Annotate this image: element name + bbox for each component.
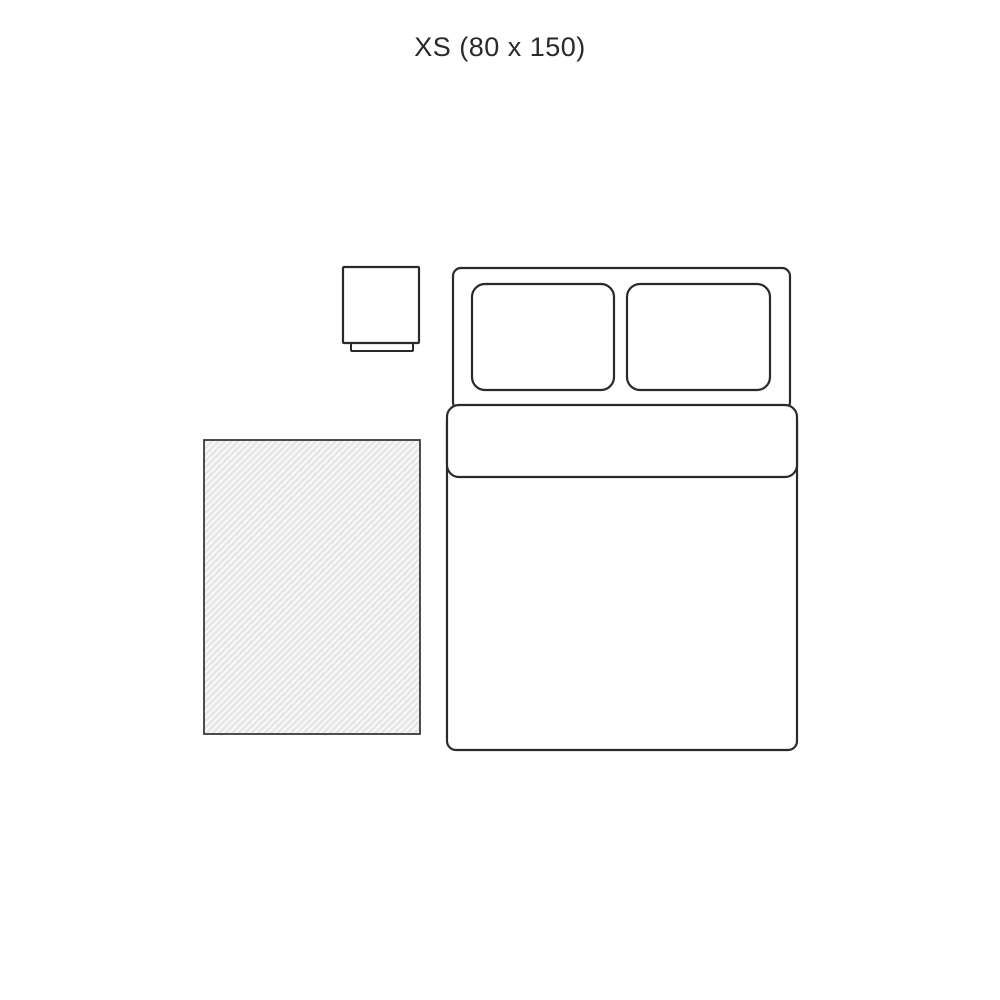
pillow-left [472, 284, 614, 390]
room-layout-diagram [0, 0, 1000, 1000]
bed [447, 268, 797, 750]
bed-sheet-fold [447, 405, 797, 477]
rug-size-guide: XS (80 x 150) [0, 0, 1000, 1000]
pillow-right [627, 284, 770, 390]
nightstand-top [343, 267, 419, 343]
nightstand [343, 267, 419, 351]
rug [204, 440, 420, 734]
